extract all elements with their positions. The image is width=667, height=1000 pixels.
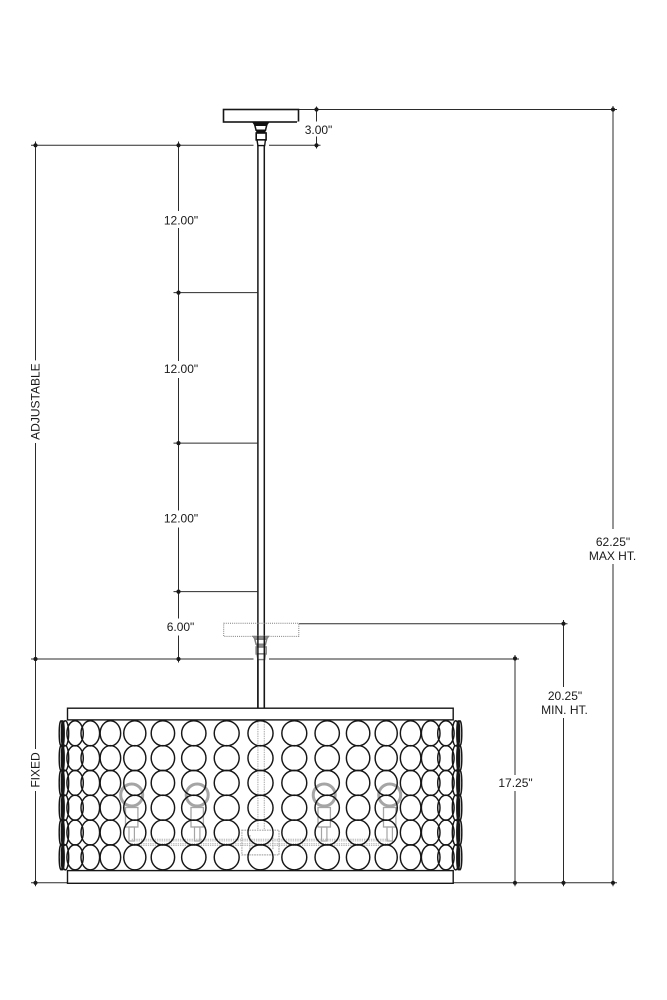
svg-text:12.00": 12.00" (164, 214, 198, 228)
svg-text:MIN. HT.: MIN. HT. (541, 703, 588, 717)
svg-text:20.25": 20.25" (548, 689, 582, 703)
svg-text:17.25": 17.25" (498, 776, 532, 790)
svg-text:12.00": 12.00" (164, 362, 198, 376)
svg-text:FIXED: FIXED (29, 752, 43, 788)
svg-text:MAX HT.: MAX HT. (589, 549, 636, 563)
svg-text:12.00": 12.00" (164, 511, 198, 525)
svg-text:ADJUSTABLE: ADJUSTABLE (29, 363, 43, 439)
svg-text:62.25": 62.25" (596, 535, 630, 549)
svg-text:6.00": 6.00" (167, 620, 195, 634)
svg-text:3.00": 3.00" (305, 123, 333, 137)
